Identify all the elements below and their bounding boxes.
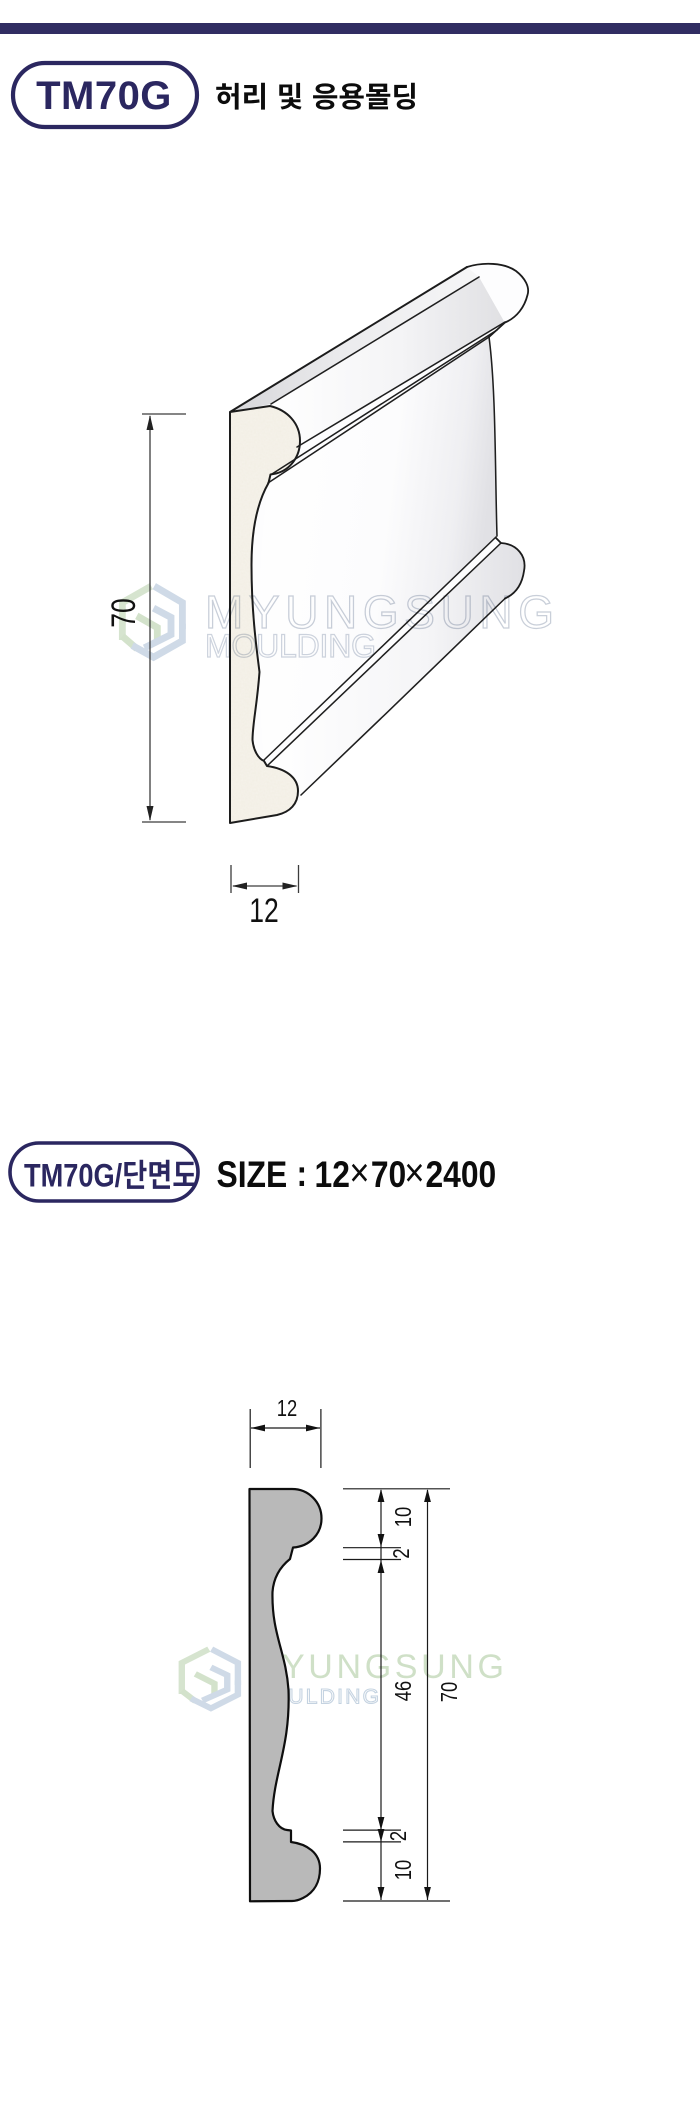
svg-text:12: 12 xyxy=(249,892,279,930)
svg-text:2: 2 xyxy=(389,1548,414,1558)
svg-text:12: 12 xyxy=(277,1396,297,1421)
svg-text:10: 10 xyxy=(391,1507,416,1527)
svg-text:2: 2 xyxy=(386,1831,411,1841)
svg-text:×: × xyxy=(404,1150,424,1195)
svg-text:SIZE: SIZE xyxy=(217,1155,288,1196)
svg-text:MOULDING: MOULDING xyxy=(205,628,376,664)
svg-text:70: 70 xyxy=(371,1155,406,1196)
svg-text:46: 46 xyxy=(391,1681,416,1701)
svg-text:TM70G: TM70G xyxy=(36,74,172,118)
svg-text:70: 70 xyxy=(105,598,143,628)
svg-text:10: 10 xyxy=(391,1860,416,1880)
svg-text:70: 70 xyxy=(437,1682,462,1702)
svg-text:×: × xyxy=(349,1150,369,1195)
svg-text:TM70G/: TM70G/ xyxy=(24,1158,122,1194)
svg-text:12: 12 xyxy=(315,1155,350,1196)
svg-text::: : xyxy=(296,1154,307,1195)
svg-text:2400: 2400 xyxy=(425,1155,496,1196)
